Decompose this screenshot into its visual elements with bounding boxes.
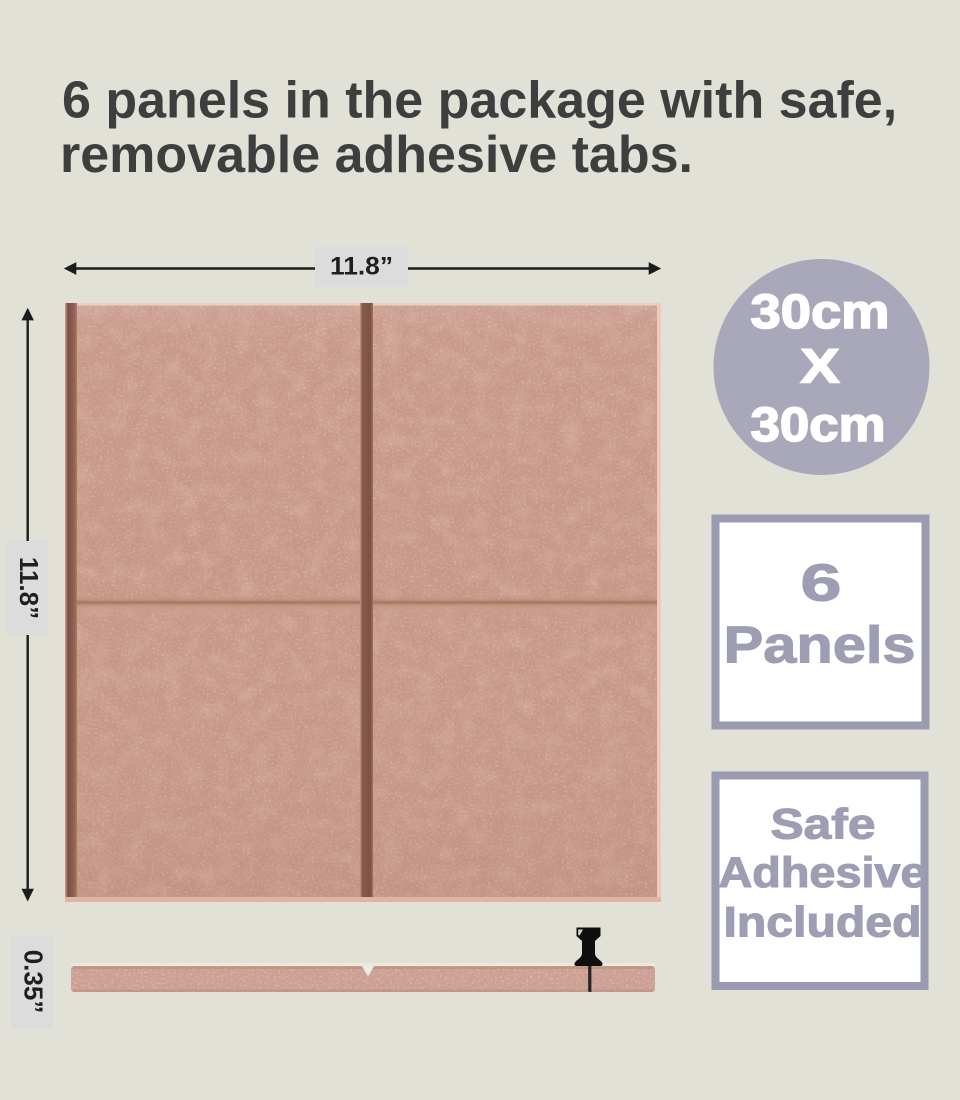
svg-text:6 panels in the package with s: 6 panels in the package with safe, (62, 72, 897, 130)
svg-text:Included: Included (724, 900, 922, 947)
svg-text:Safe: Safe (771, 801, 876, 848)
svg-text:Adhesive: Adhesive (719, 850, 927, 897)
svg-text:11.8”: 11.8” (14, 557, 44, 619)
svg-text:0.35”: 0.35” (19, 950, 49, 1014)
svg-text:removable adhesive tabs.: removable adhesive tabs. (60, 126, 693, 184)
svg-text:X: X (801, 341, 840, 394)
svg-text:11.8”: 11.8” (330, 253, 393, 281)
svg-text:Panels: Panels (724, 616, 916, 674)
svg-text:30cm: 30cm (751, 399, 886, 452)
svg-text:6: 6 (801, 554, 842, 612)
svg-text:30cm: 30cm (751, 286, 890, 339)
